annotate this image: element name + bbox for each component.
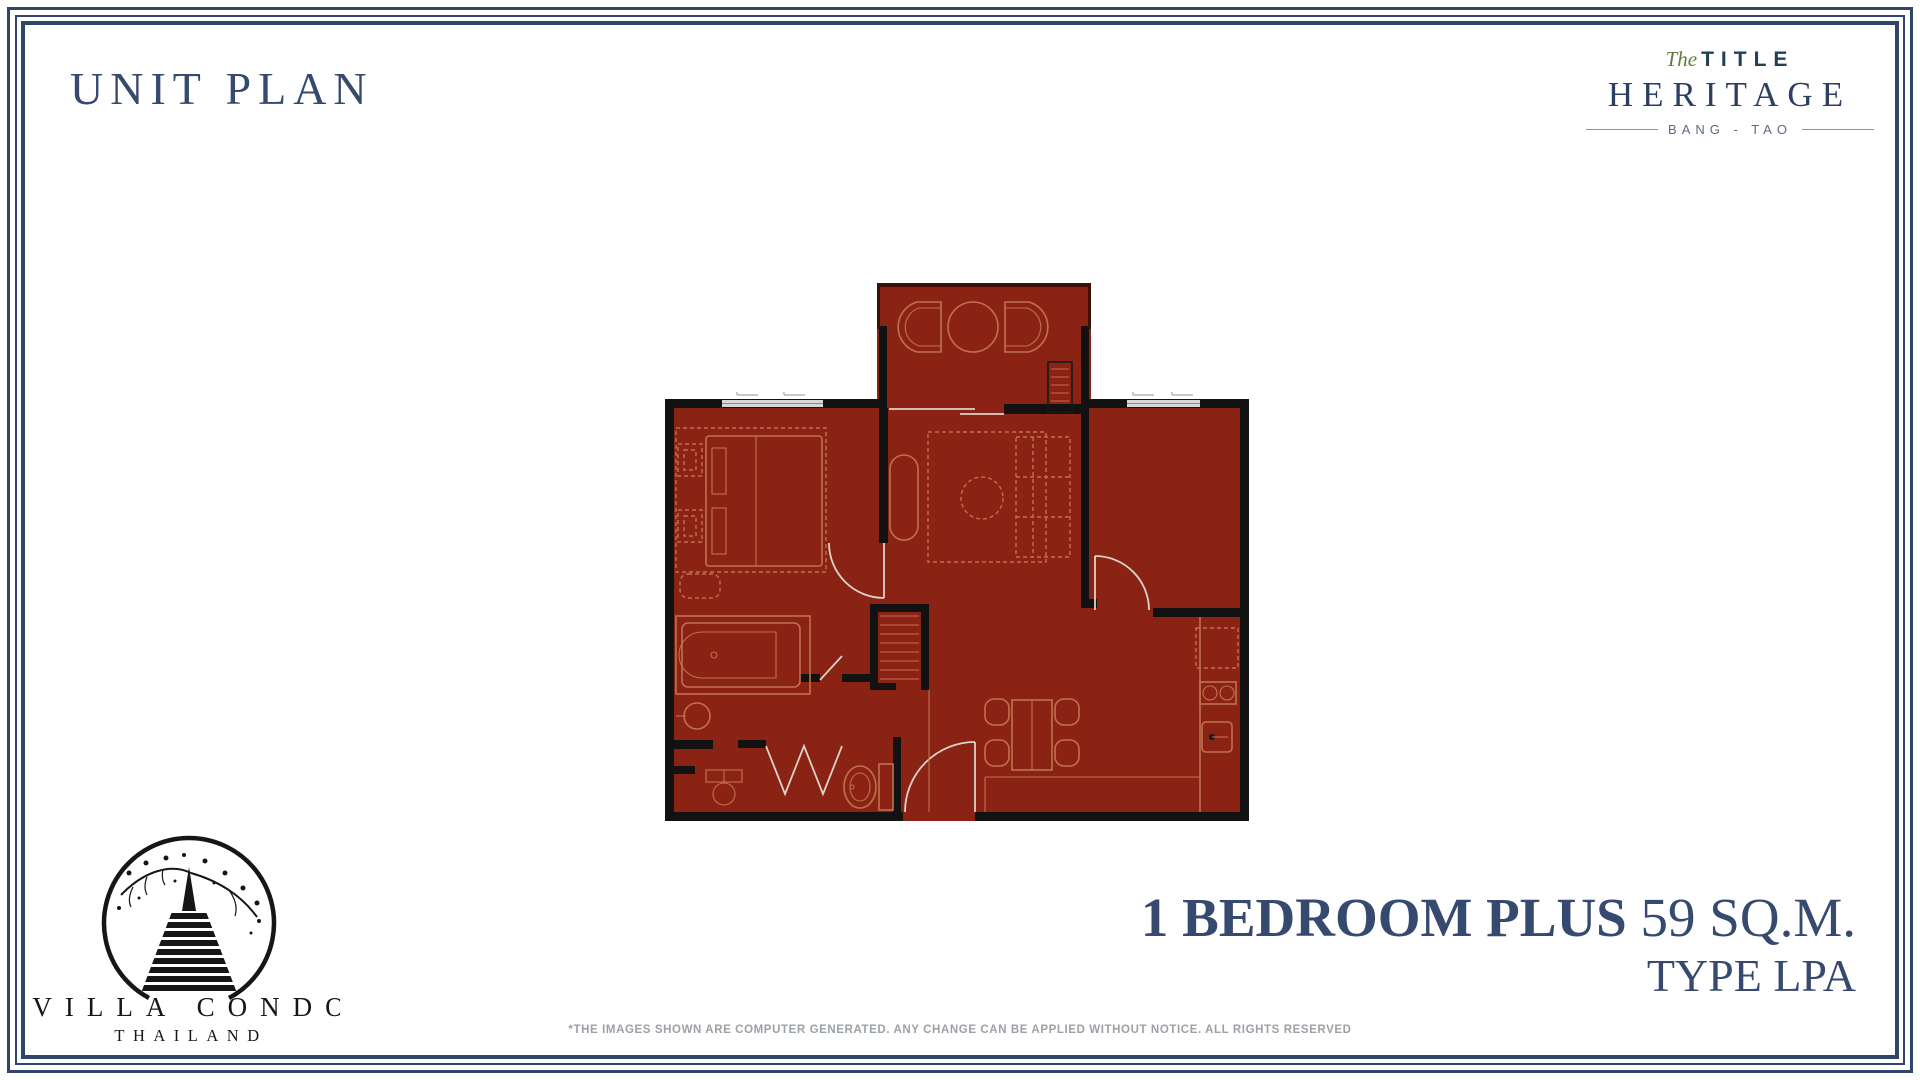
brand-top-line: TheTITLE [1602,46,1858,72]
unit-area: 59 SQ.M. [1641,887,1856,948]
rule-right [1802,129,1874,130]
brochure-page: UNIT PLAN TheTITLE HERITAGE BANG - TAO [0,0,1920,1080]
brand-location-row: BANG - TAO [1602,122,1858,137]
disclaimer: *THE IMAGES SHOWN ARE COMPUTER GENERATED… [0,1024,1920,1036]
developer-name-svg: VILLA CONDO [32,992,340,1022]
brand-location: BANG - TAO [1668,122,1792,137]
brand-the: The [1666,47,1698,71]
unit-info: 1 BEDROOM PLUS 59 SQ.M. TYPE LPA [1141,888,1856,1001]
developer-logo: VILLA CONDO THAILAND [28,833,340,1048]
brand-heritage: HERITAGE [1602,75,1858,115]
rule-left [1586,129,1658,130]
unit-name-area: 1 BEDROOM PLUS 59 SQ.M. [1141,888,1856,947]
unit-type: TYPE LPA [1141,951,1856,1001]
unit-name: 1 BEDROOM PLUS [1141,887,1627,948]
brand-logo: TheTITLE HERITAGE BANG - TAO [1602,46,1858,137]
page-title: UNIT PLAN [70,62,374,115]
brand-title: TITLE [1701,48,1794,71]
floor-plan [655,278,1255,828]
logo-stupa [129,867,249,991]
